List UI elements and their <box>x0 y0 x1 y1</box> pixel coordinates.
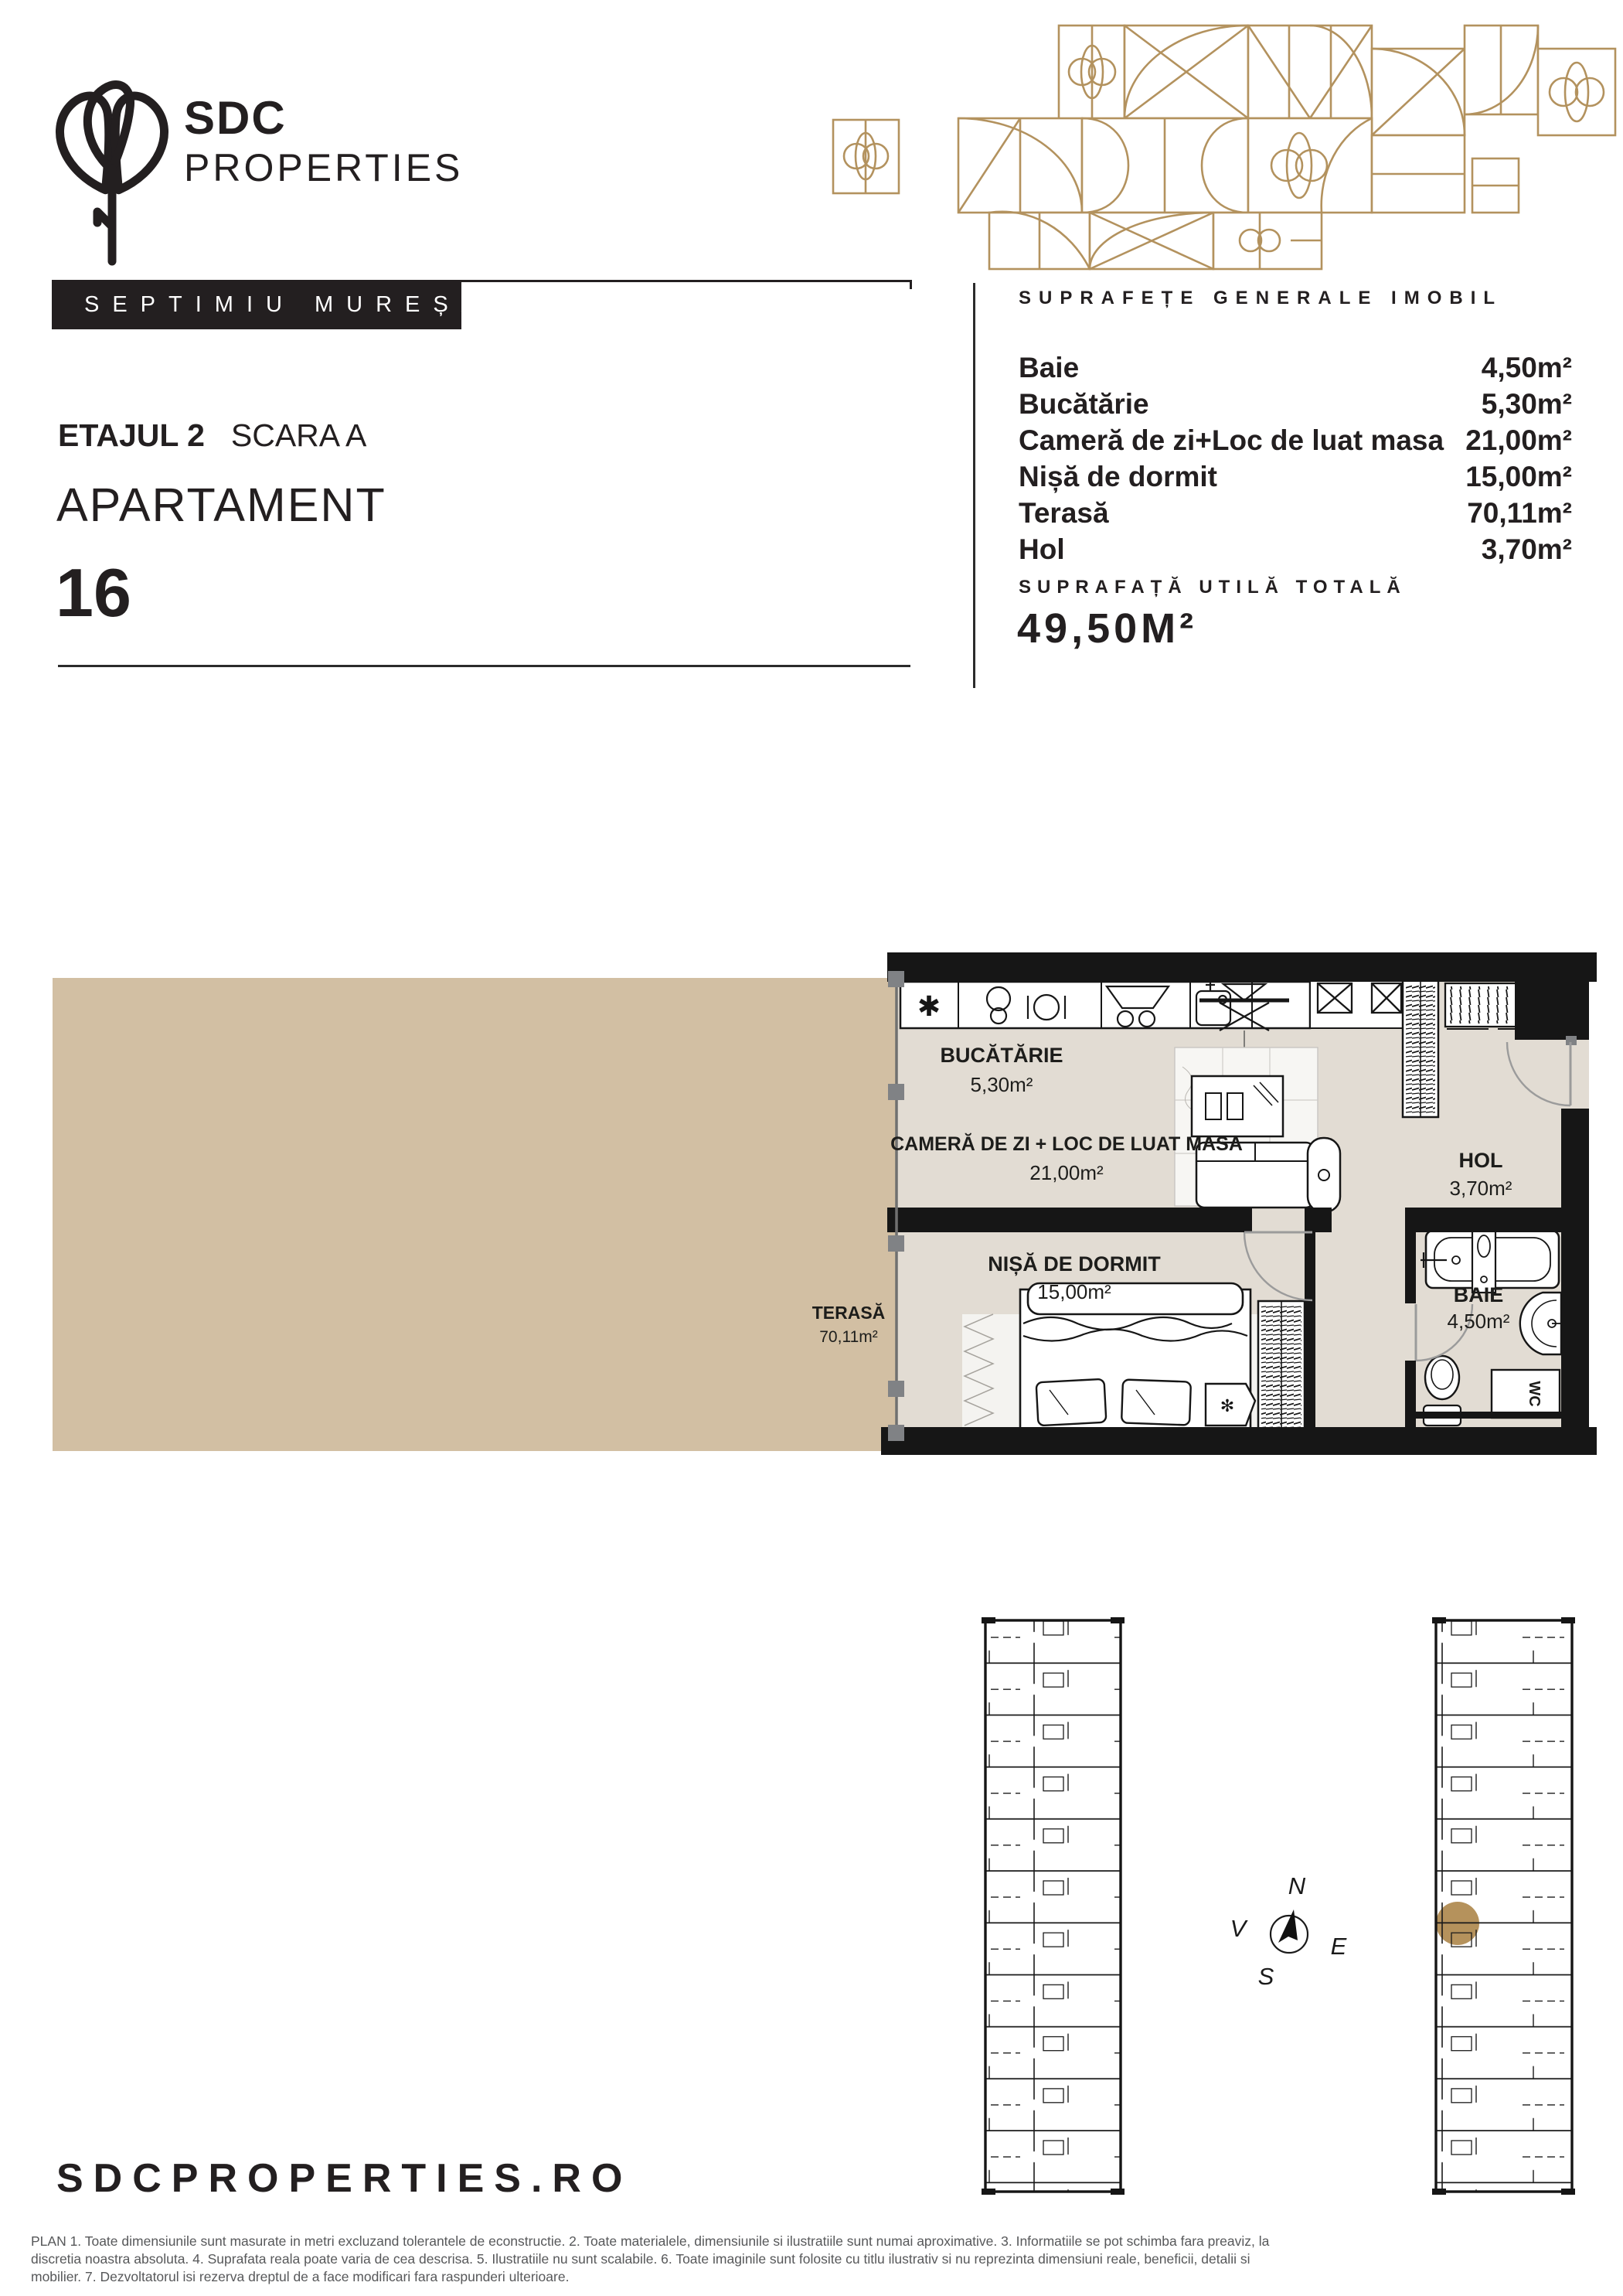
footer-website: SDCPROPERTIES.RO <box>56 2155 632 2202</box>
terrace-area <box>53 978 897 1451</box>
bedroom-area: 15,00m² <box>1037 1280 1111 1303</box>
total-area-label: SUPRAFAȚĂ UTILĂ TOTALĂ <box>1019 577 1407 598</box>
compass-n: N <box>1288 1872 1306 1899</box>
disclaimer-line: mobilier. 7. Dezvoltatorul isi rezerva d… <box>31 2268 1600 2286</box>
hall-label: HOL <box>1459 1149 1503 1172</box>
area-label: Hol <box>1019 531 1065 567</box>
total-area-value: 49,50M² <box>1017 605 1197 652</box>
disclaimer-line: PLAN 1. Toate dimensiunile sunt masurate… <box>31 2233 1600 2250</box>
area-value: 5,30m² <box>1482 386 1572 422</box>
hall-area: 3,70m² <box>1450 1177 1512 1200</box>
areas-panel-title: SUPRAFEȚE GENERALE IMOBIL <box>1019 288 1502 309</box>
header-rule <box>58 665 910 667</box>
kitchen-label: BUCĂTĂRIE <box>941 1043 1063 1067</box>
kitchen-area: 5,30m² <box>971 1073 1033 1096</box>
floor-staircase-row: ETAJUL 2SCARA A <box>58 417 366 454</box>
area-row-hol: Hol 3,70m² <box>1019 531 1572 567</box>
footer-disclaimer: PLAN 1. Toate dimensiunile sunt masurate… <box>31 2233 1600 2286</box>
column-divider <box>973 283 975 688</box>
brand-name-top: SDC <box>184 91 287 145</box>
badge-extension-line <box>461 280 912 289</box>
compass-rose: N V E S <box>1230 1872 1347 1990</box>
bedroom-label: NIȘĂ DE DORMIT <box>988 1252 1161 1276</box>
svg-text:✻: ✻ <box>1220 1396 1234 1415</box>
bath-label: BAIE <box>1454 1283 1504 1306</box>
decorative-pattern <box>827 4 1623 274</box>
living-label: CAMERĂ DE ZI + LOC DE LUAT MASA <box>890 1133 1243 1155</box>
area-label: Nișă de dormit <box>1019 458 1217 495</box>
disclaimer-line: discretia noastra absoluta. 4. Suprafata… <box>31 2250 1600 2268</box>
brand-name-bottom: PROPERTIES <box>184 145 463 190</box>
living-room-furniture <box>1175 1048 1340 1212</box>
floor-label: ETAJUL 2 <box>58 417 205 453</box>
area-row-terasa: Terasă 70,11m² <box>1019 495 1572 531</box>
svg-text:✱: ✱ <box>917 990 941 1022</box>
staircase-label: SCARA A <box>231 417 366 453</box>
wc-label: WC <box>1526 1381 1543 1406</box>
area-row-nisa: Nișă de dormit 15,00m² <box>1019 458 1572 495</box>
compass-s: S <box>1258 1963 1274 1990</box>
area-row-baie: Baie 4,50m² <box>1019 349 1572 386</box>
area-row-camera: Cameră de zi+Loc de luat masa 21,00m² <box>1019 422 1572 458</box>
compass-v: V <box>1230 1915 1249 1942</box>
living-area: 21,00m² <box>1029 1161 1104 1184</box>
bath-area: 4,50m² <box>1448 1310 1510 1333</box>
area-row-bucatarie: Bucătărie 5,30m² <box>1019 386 1572 422</box>
building-left <box>982 1617 1125 2195</box>
area-value: 15,00m² <box>1465 458 1572 495</box>
area-label: Baie <box>1019 349 1079 386</box>
area-value: 70,11m² <box>1467 495 1572 531</box>
corridor-closet <box>1403 980 1438 1117</box>
area-value: 3,70m² <box>1482 531 1572 567</box>
area-value: 21,00m² <box>1465 422 1572 458</box>
agent-badge: SEPTIMIU MUREȘAN <box>52 280 461 329</box>
unit-type-title: APARTAMENT <box>56 478 386 532</box>
areas-list: Baie 4,50m² Bucătărie 5,30m² Cameră de z… <box>1019 349 1572 567</box>
compass-e: E <box>1331 1933 1347 1960</box>
area-label: Bucătărie <box>1019 386 1149 422</box>
unit-number: 16 <box>56 554 131 632</box>
terrace-label: TERASĂ <box>812 1302 886 1323</box>
building-right <box>1432 1617 1575 2195</box>
plan-sheet-page: SDC PROPERTIES <box>0 0 1623 2296</box>
area-value: 4,50m² <box>1482 349 1572 386</box>
apartment-floor-plan: ✱ <box>0 947 1623 1465</box>
terrace-area-label: 70,11m² <box>819 1328 877 1346</box>
logo-tree-icon <box>46 68 178 273</box>
building-key-plans: N V E S <box>966 1612 1592 2203</box>
area-label: Cameră de zi+Loc de luat masa <box>1019 422 1444 458</box>
area-label: Terasă <box>1019 495 1109 531</box>
